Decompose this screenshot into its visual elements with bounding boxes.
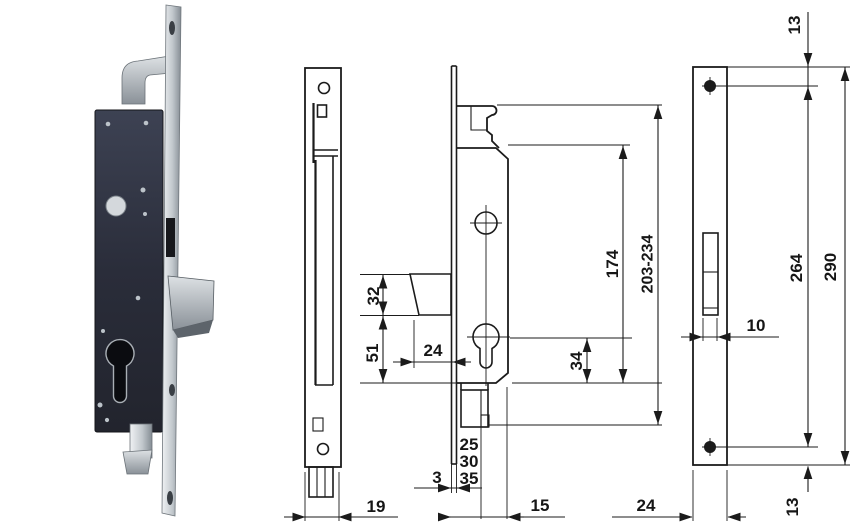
dim-center-to-bottom: 34 [567, 351, 586, 370]
photo-faceplate [162, 5, 181, 516]
dim-slot-width: 10 [747, 316, 766, 335]
photo-screw-bottom [167, 491, 173, 505]
photo-drop-bolt-foot [123, 450, 152, 474]
strike-keeper-slot [703, 233, 718, 315]
lock-technical-drawing: 19 [0, 0, 862, 531]
photo-faceplate-slot [166, 218, 175, 257]
photo-screw-mid [169, 384, 175, 396]
strike-outline [693, 67, 727, 465]
product-photo [95, 5, 214, 516]
front-dimension-15: 15 [438, 496, 565, 517]
front-dimension-24: 24 [393, 320, 471, 368]
strike-dimension-290: 290 [821, 67, 845, 465]
photo-lock-case [95, 110, 163, 432]
front-hook-bolt [457, 106, 499, 148]
dim-hole-spacing: 264 [787, 253, 806, 282]
dim-strike-height: 290 [821, 253, 840, 281]
photo-top-hole [106, 196, 126, 216]
front-view: 32 51 24 34 174 [360, 66, 662, 519]
front-faceplate [452, 66, 457, 464]
dim-backset-35: 35 [460, 469, 479, 488]
dim-hook-section: 32 [364, 287, 383, 306]
side-dimension-19: 19 [284, 472, 398, 521]
strike-dimension-10: 10 [681, 316, 779, 341]
front-pin-housing [461, 383, 489, 427]
front-hook-thrown [410, 274, 451, 315]
dim-case-height: 174 [603, 249, 622, 278]
dim-strike-width: 24 [637, 496, 656, 515]
front-case-outline [457, 148, 508, 383]
strike-dimension-24: 24 [612, 470, 746, 521]
side-plate-outline [305, 68, 341, 467]
side-top-hole [319, 83, 330, 94]
dim-hook-to-center: 51 [363, 344, 382, 363]
dim-side-plate-width: 19 [367, 497, 386, 516]
dim-overall-height: 203-234 [640, 235, 657, 294]
photo-hook-bolt [122, 56, 171, 104]
front-dimensions-right: 34 174 203-234 [488, 105, 662, 425]
dim-hook-projection: 24 [424, 341, 443, 360]
photo-screw-top [169, 21, 175, 35]
front-backset-options: 25 30 35 [460, 387, 507, 519]
strike-dimension-13-264: 13 264 13 [783, 12, 808, 516]
drawing-canvas: 19 [0, 0, 862, 531]
dim-bottom-hole-offset: 13 [783, 498, 802, 517]
dim-top-hole-offset: 13 [785, 16, 804, 35]
dim-case-depth: 15 [531, 496, 550, 515]
dim-faceplate-thickness: 3 [432, 468, 441, 487]
front-dimensions-left: 32 51 [360, 275, 457, 384]
side-mechanism [309, 103, 338, 497]
